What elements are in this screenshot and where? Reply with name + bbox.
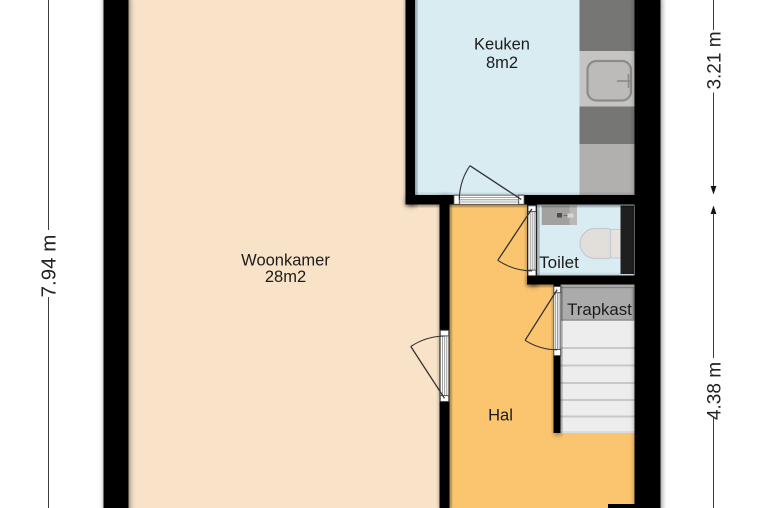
svg-text:28m2: 28m2 bbox=[265, 268, 306, 286]
svg-text:3.21 m: 3.21 m bbox=[705, 31, 726, 89]
svg-text:Hal: Hal bbox=[488, 407, 513, 425]
svg-text:Trapkast: Trapkast bbox=[567, 300, 632, 319]
svg-text:Toilet: Toilet bbox=[539, 253, 579, 272]
svg-text:8m2: 8m2 bbox=[486, 54, 518, 72]
svg-text:7.94 m: 7.94 m bbox=[38, 235, 61, 298]
svg-text:Keuken: Keuken bbox=[474, 36, 530, 54]
svg-text:Woonkamer: Woonkamer bbox=[241, 252, 330, 270]
svg-text:4.38 m: 4.38 m bbox=[705, 362, 726, 420]
